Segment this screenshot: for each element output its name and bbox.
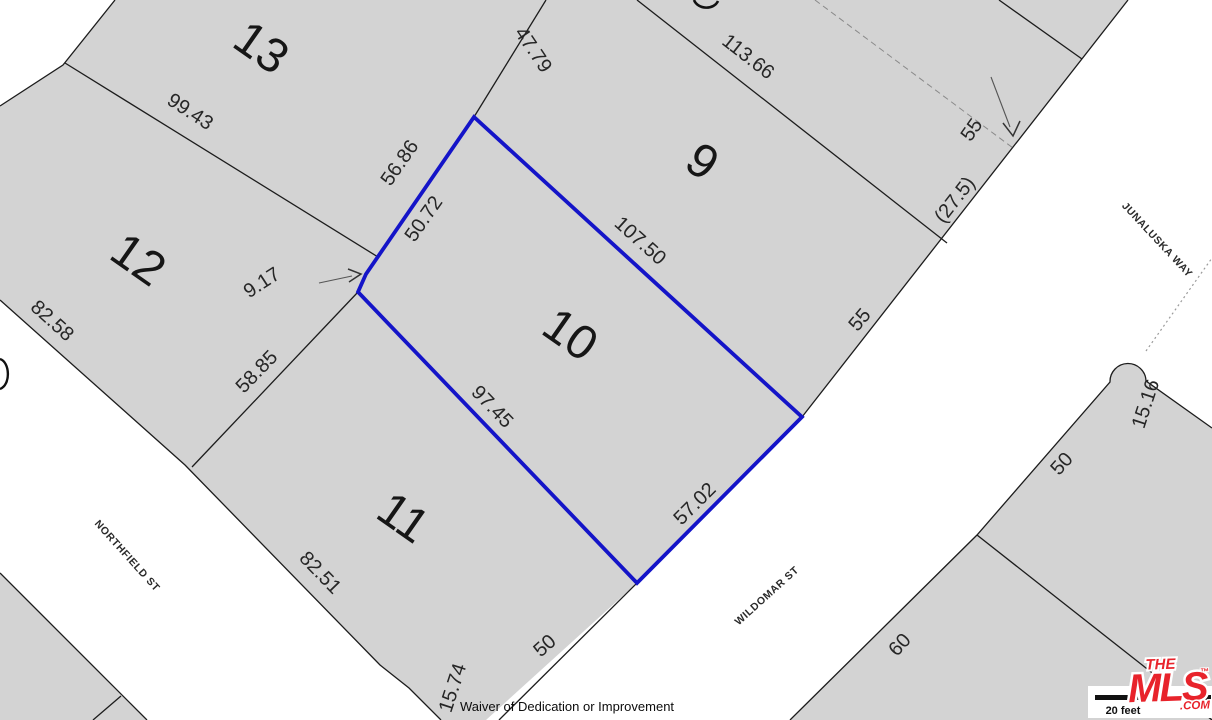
- mls-logo-com: .COM: [1180, 699, 1211, 712]
- mls-logo-trademark: ™: [1200, 666, 1209, 676]
- plat-map: 13 12 9 10 11 99.43 47.79 56.86 50.72 10…: [0, 0, 1212, 720]
- map-caption: Waiver of Dedication or Improvement: [460, 699, 674, 714]
- plat-map-page: 13 12 9 10 11 99.43 47.79 56.86 50.72 10…: [0, 0, 1212, 720]
- partial-dimension-left: [0, 359, 8, 389]
- street-name-wildomar: WILDOMAR ST: [733, 564, 802, 628]
- street-name-northfield: NORTHFIELD ST: [92, 518, 162, 594]
- street-name-junaluska: JUNALUSKA WAY: [1119, 200, 1195, 280]
